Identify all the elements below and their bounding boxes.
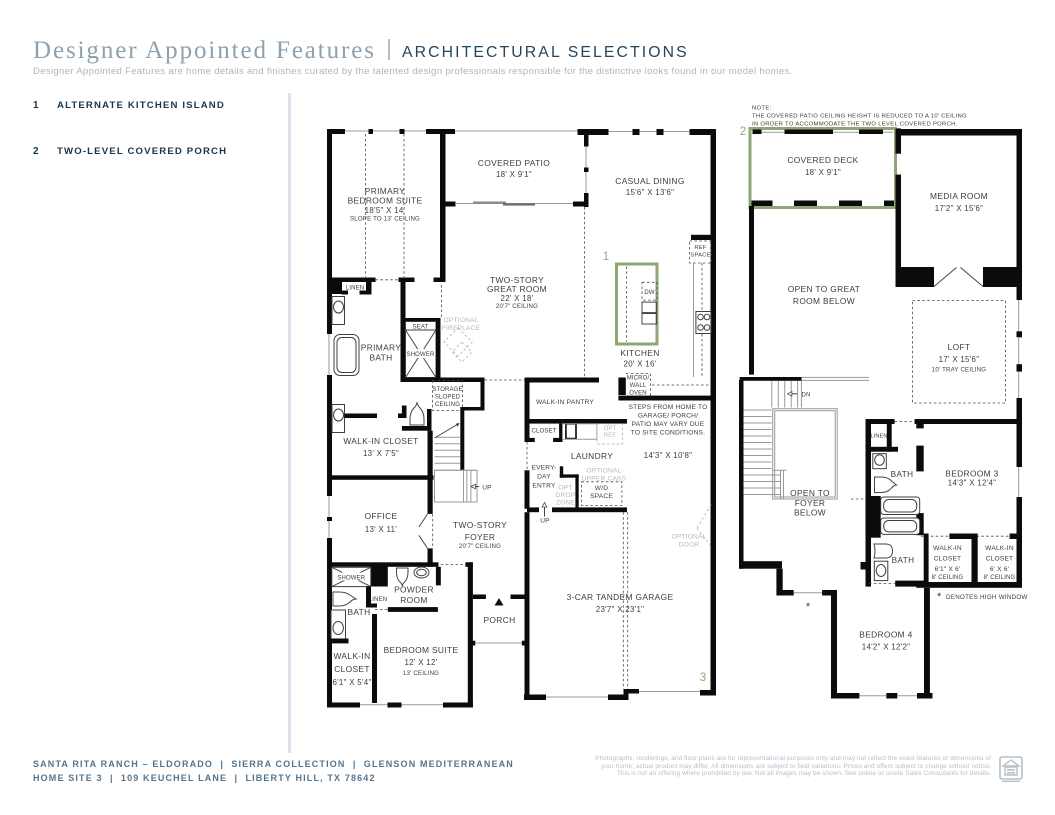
svg-text:2: 2: [740, 126, 746, 138]
svg-text:OPTIONAL: OPTIONAL: [444, 317, 479, 324]
svg-text:DW: DW: [644, 290, 654, 296]
svg-text:WALK-IN: WALK-IN: [333, 651, 370, 661]
svg-text:20'7" CEILING: 20'7" CEILING: [496, 303, 538, 310]
svg-text:EVERY-: EVERY-: [531, 465, 556, 472]
svg-text:OPT: OPT: [558, 485, 572, 492]
svg-text:DROP: DROP: [556, 492, 576, 499]
svg-text:BATH: BATH: [347, 607, 370, 617]
svg-text:SLOPED: SLOPED: [435, 395, 461, 401]
svg-text:15'6" X 13'6": 15'6" X 13'6": [626, 188, 675, 197]
svg-text:12' X 12': 12' X 12': [405, 658, 438, 667]
svg-text:BATH: BATH: [369, 353, 392, 363]
svg-text:18' X 9'1": 18' X 9'1": [805, 168, 841, 177]
svg-text:FOYER: FOYER: [465, 532, 496, 542]
svg-text:STEPS FROM HOME TO: STEPS FROM HOME TO: [629, 404, 708, 411]
svg-text:STORAGE: STORAGE: [432, 387, 462, 393]
svg-text:WALK-IN PANTRY: WALK-IN PANTRY: [536, 399, 594, 406]
svg-text:14'3" X 10'8": 14'3" X 10'8": [644, 451, 693, 460]
svg-text:REF: REF: [604, 433, 617, 439]
svg-text:BEDROOM SUITE: BEDROOM SUITE: [384, 645, 459, 655]
svg-text:17'2" X 15'6": 17'2" X 15'6": [935, 204, 984, 213]
svg-text:SLOPE TO 13' CEILING: SLOPE TO 13' CEILING: [350, 216, 420, 223]
svg-text:REF: REF: [694, 245, 706, 251]
svg-text:14'3" X 12'4": 14'3" X 12'4": [948, 479, 997, 488]
svg-text:WALK-IN: WALK-IN: [933, 545, 962, 552]
svg-text:14'2" X 12'2": 14'2" X 12'2": [862, 643, 911, 652]
svg-text:BEDROOM 4: BEDROOM 4: [859, 630, 912, 640]
svg-text:PORCH: PORCH: [484, 615, 516, 625]
svg-text:GREAT ROOM: GREAT ROOM: [487, 284, 547, 294]
svg-text:18' X 9'1": 18' X 9'1": [496, 170, 532, 179]
svg-text:6'1" X 5'4": 6'1" X 5'4": [332, 678, 371, 687]
svg-text:10' TRAY CEILING: 10' TRAY CEILING: [932, 367, 987, 374]
svg-text:LINEN: LINEN: [369, 597, 387, 603]
svg-text:SHOWER: SHOWER: [337, 575, 365, 581]
svg-text:OPEN TO GREAT: OPEN TO GREAT: [788, 284, 861, 294]
svg-text:DN: DN: [802, 393, 811, 399]
svg-text:FIREPLACE: FIREPLACE: [442, 325, 481, 332]
svg-text:OVEN: OVEN: [629, 390, 647, 396]
svg-text:CLOSET: CLOSET: [532, 429, 557, 435]
svg-text:POWDER: POWDER: [394, 585, 434, 595]
svg-text:LINEN: LINEN: [346, 286, 364, 292]
svg-text:KITCHEN: KITCHEN: [620, 348, 659, 358]
svg-text:ENTRY: ENTRY: [532, 483, 556, 490]
svg-text:LINEN: LINEN: [871, 434, 888, 440]
svg-text:8' CEILING: 8' CEILING: [984, 575, 1016, 581]
svg-text:CLOSET: CLOSET: [334, 664, 370, 674]
svg-text:6' X 6': 6' X 6': [990, 566, 1009, 573]
svg-text:FOYER: FOYER: [795, 498, 826, 508]
svg-text:ZONE: ZONE: [556, 500, 576, 507]
svg-text:SEAT: SEAT: [413, 324, 429, 330]
svg-text:OPEN TO: OPEN TO: [790, 488, 830, 498]
svg-text:THE COVERED PATIO CEILING HEIG: THE COVERED PATIO CEILING HEIGHT IS REDU…: [752, 114, 967, 120]
svg-text:DOOR: DOOR: [679, 542, 700, 549]
svg-text:BEDROOM SUITE: BEDROOM SUITE: [348, 196, 423, 206]
svg-text:*: *: [806, 601, 811, 613]
svg-text:W/D: W/D: [595, 485, 608, 492]
svg-text:LAUNDRY: LAUNDRY: [571, 451, 613, 461]
svg-text:CLOSET: CLOSET: [986, 556, 1014, 563]
svg-text:WALL: WALL: [630, 383, 647, 389]
svg-text:CLOSET: CLOSET: [934, 556, 962, 563]
svg-text:22' X 18': 22' X 18': [501, 294, 534, 303]
svg-text:OPT: OPT: [604, 426, 617, 432]
svg-text:*: *: [937, 591, 942, 603]
svg-text:UP: UP: [540, 518, 550, 525]
svg-text:TWO-STORY: TWO-STORY: [453, 520, 507, 530]
svg-text:COVERED DECK: COVERED DECK: [787, 155, 858, 165]
svg-text:TO SITE CONDITIONS.: TO SITE CONDITIONS.: [631, 430, 705, 437]
svg-text:NOTE:: NOTE:: [752, 106, 772, 112]
svg-text:SHOWER: SHOWER: [407, 352, 435, 358]
svg-text:20' X 16': 20' X 16': [624, 360, 657, 369]
svg-text:3: 3: [700, 672, 706, 684]
svg-text:3-CAR TANDEM GARAGE: 3-CAR TANDEM GARAGE: [567, 592, 674, 602]
svg-text:18'5" X 14': 18'5" X 14': [365, 206, 406, 215]
svg-text:CEILING: CEILING: [435, 402, 460, 408]
svg-text:UP: UP: [482, 485, 492, 492]
svg-text:MEDIA ROOM: MEDIA ROOM: [930, 191, 988, 201]
svg-text:WALK-IN CLOSET: WALK-IN CLOSET: [343, 436, 418, 446]
svg-text:20'7" CEILING: 20'7" CEILING: [459, 543, 501, 550]
svg-text:GARAGE/ PORCH/: GARAGE/ PORCH/: [638, 413, 698, 420]
svg-text:SPACE: SPACE: [590, 493, 613, 500]
svg-text:8' CEILING: 8' CEILING: [932, 575, 964, 581]
svg-text:BATH: BATH: [891, 470, 914, 479]
svg-text:DAY: DAY: [537, 474, 551, 481]
svg-text:23'7" X 23'1": 23'7" X 23'1": [596, 605, 645, 614]
svg-text:1: 1: [603, 251, 609, 263]
svg-text:CASUAL DINING: CASUAL DINING: [615, 176, 684, 186]
svg-text:OFFICE: OFFICE: [365, 511, 398, 521]
svg-text:6'1" X 6': 6'1" X 6': [935, 566, 961, 573]
svg-text:DENOTES HIGH WINDOW: DENOTES HIGH WINDOW: [946, 594, 1028, 601]
svg-text:WALK-IN: WALK-IN: [985, 545, 1014, 552]
svg-text:13' X 7'5": 13' X 7'5": [363, 449, 399, 458]
svg-text:MICRO/: MICRO/: [627, 376, 650, 382]
svg-text:BEDROOM 3: BEDROOM 3: [945, 469, 998, 479]
svg-text:OPTIONAL: OPTIONAL: [672, 534, 707, 541]
svg-text:COVERED PATIO: COVERED PATIO: [478, 158, 550, 168]
svg-text:SPACE: SPACE: [690, 253, 710, 259]
svg-text:17' X 15'6": 17' X 15'6": [939, 355, 980, 364]
svg-text:IN ORDER TO ACCOMMODATE THE TW: IN ORDER TO ACCOMMODATE THE TWO LEVEL CO…: [752, 121, 958, 127]
svg-text:13' X 11': 13' X 11': [365, 525, 398, 534]
svg-text:ROOM BELOW: ROOM BELOW: [793, 296, 855, 306]
svg-text:BELOW: BELOW: [794, 508, 826, 518]
svg-text:BATH: BATH: [892, 556, 915, 565]
svg-text:PRIMARY: PRIMARY: [361, 343, 402, 353]
svg-text:LOFT: LOFT: [948, 342, 971, 352]
svg-text:PRIMARY: PRIMARY: [365, 186, 406, 196]
svg-text:PATIO MAY VARY DUE: PATIO MAY VARY DUE: [632, 421, 705, 428]
svg-text:13' CEILING: 13' CEILING: [403, 670, 439, 677]
svg-text:ROOM: ROOM: [400, 595, 427, 605]
svg-text:OPTIONAL: OPTIONAL: [587, 468, 622, 475]
